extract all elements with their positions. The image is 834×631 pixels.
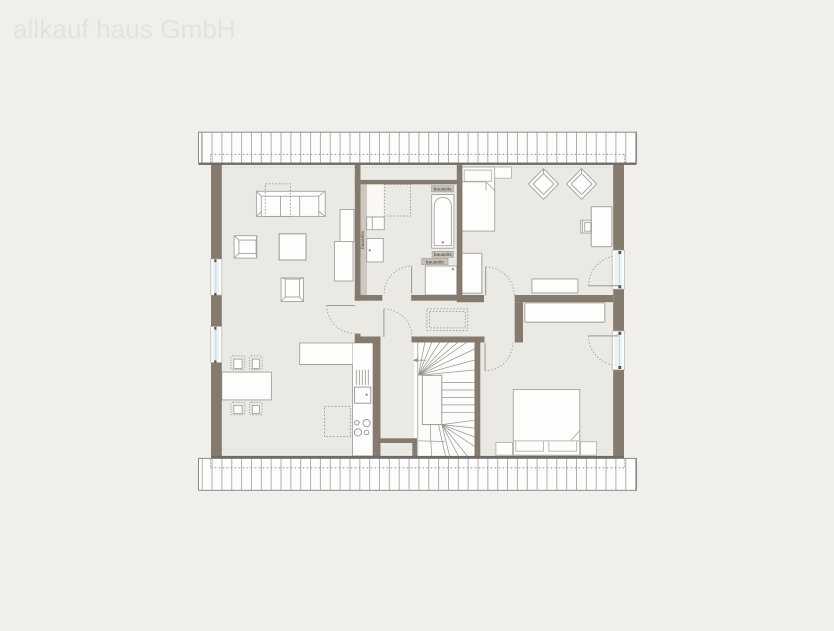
svg-text:bauseits: bauseits <box>434 252 452 258</box>
svg-text:bauseits: bauseits <box>434 187 452 193</box>
svg-text:bauseits: bauseits <box>426 259 444 265</box>
svg-text:allkauf haus GmbH: allkauf haus GmbH <box>13 14 236 44</box>
svg-text:bauseits: bauseits <box>360 230 366 248</box>
